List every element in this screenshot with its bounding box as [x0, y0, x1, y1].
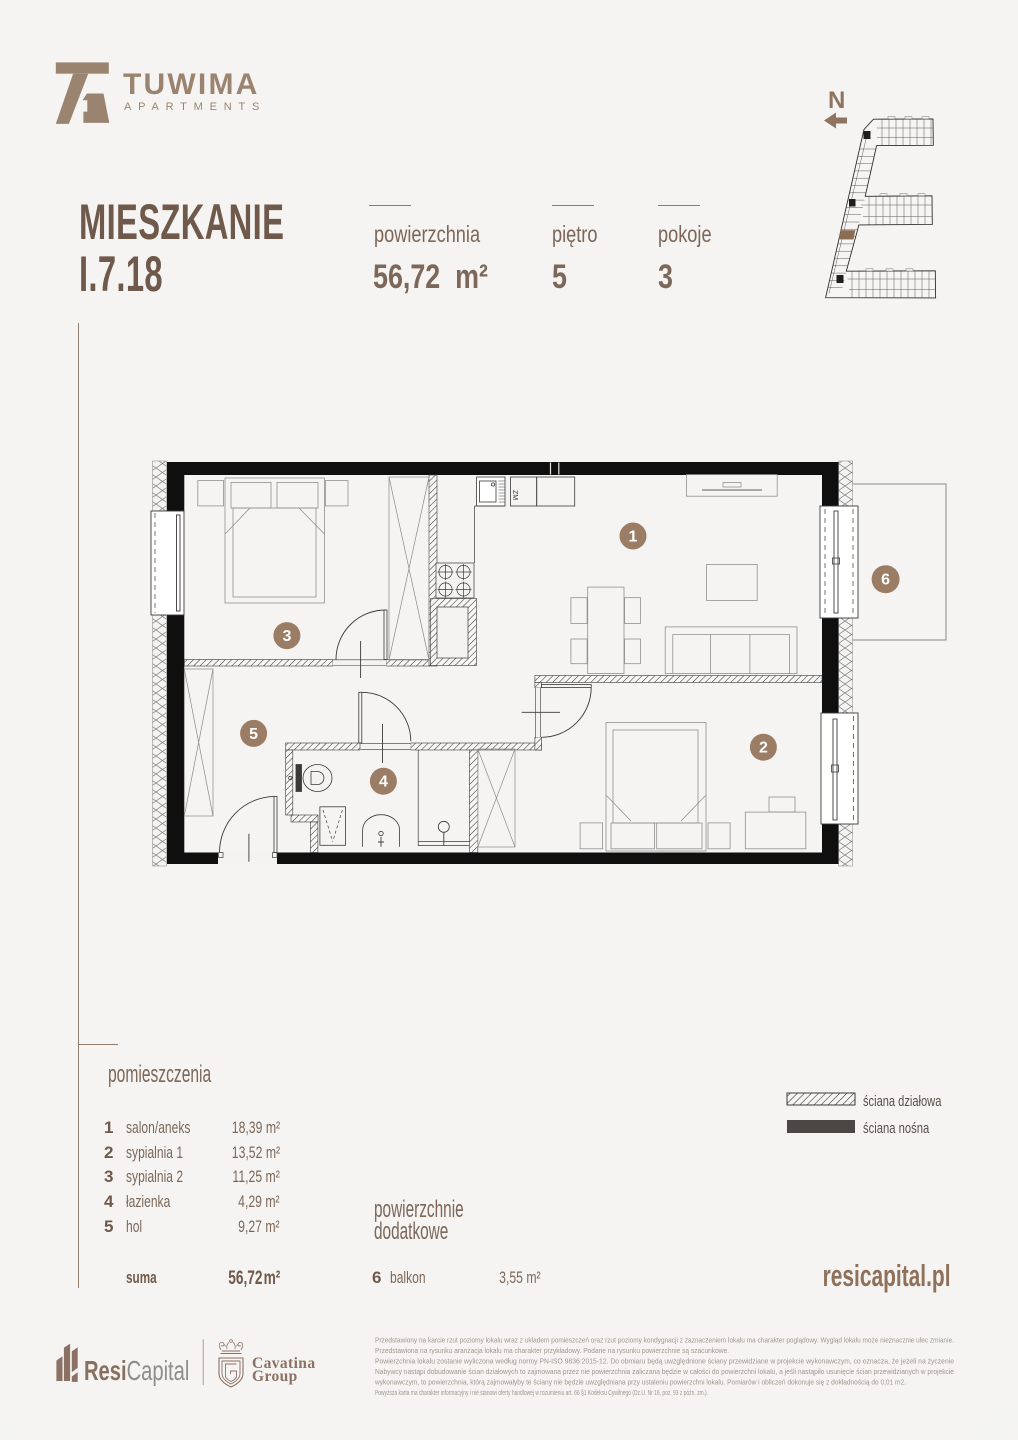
svg-text:2: 2: [759, 740, 768, 757]
svg-text:Powierzchnia lokalu zostanie w: Powierzchnia lokalu zostanie wyliczona w…: [375, 1357, 954, 1366]
svg-text:Przedstawiona na rysunku aranż: Przedstawiona na rysunku aranżacja lokal…: [375, 1346, 729, 1355]
svg-text:1: 1: [629, 529, 638, 546]
svg-text:ZM: ZM: [511, 490, 518, 500]
svg-text:5: 5: [249, 726, 258, 743]
svg-text:wykonawczym, to powierzchnia,: wykonawczym, to powierzchnia, którą zajm…: [374, 1377, 906, 1386]
svg-text:Nabywcy nastąpi dobudowanie śc: Nabywcy nastąpi dobudowanie ścian działo…: [375, 1367, 954, 1376]
svg-text:Przedstawiony na karcie rzut p: Przedstawiony na karcie rzut poziomy lok…: [375, 1336, 954, 1345]
svg-text:6: 6: [881, 572, 890, 589]
svg-text:3: 3: [282, 628, 291, 645]
svg-text:Powyższa karta ma charakter in: Powyższa karta ma charakter informacyjny…: [375, 1388, 708, 1397]
svg-text:4: 4: [379, 774, 388, 791]
